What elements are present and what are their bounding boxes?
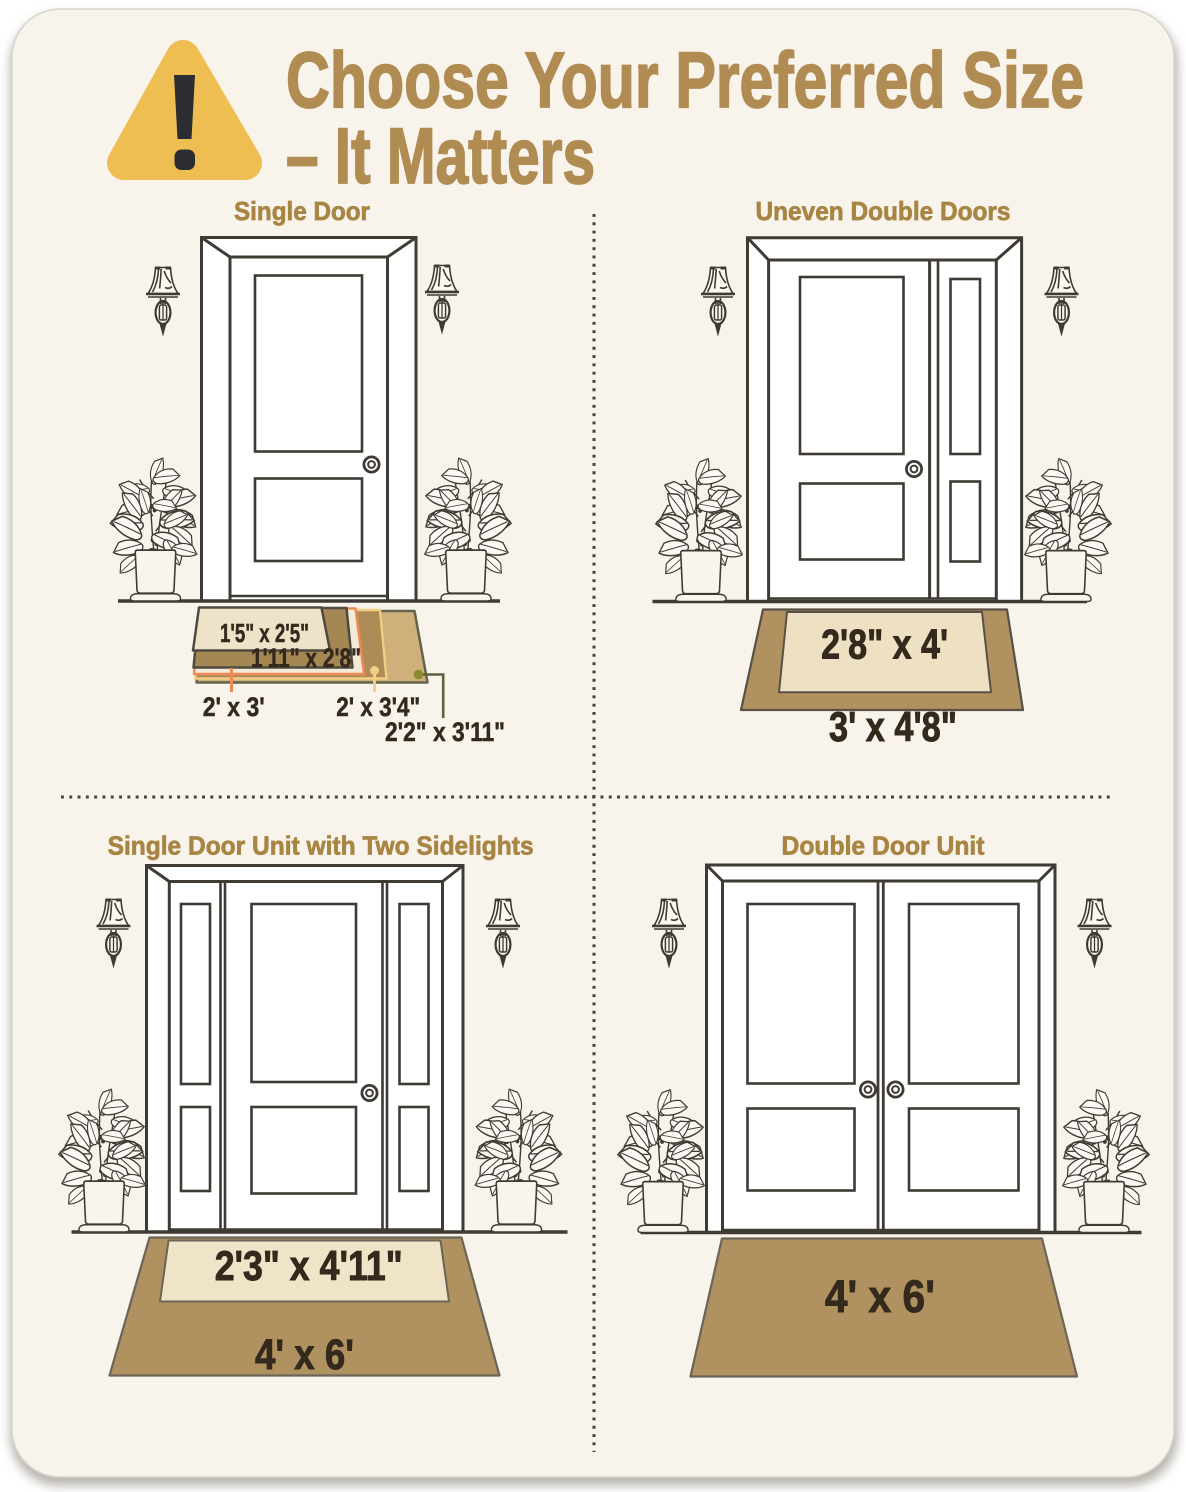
svg-text:2' x 3': 2' x 3': [203, 692, 265, 722]
svg-text:Single Door Unit with Two Side: Single Door Unit with Two Sidelights: [108, 831, 534, 861]
svg-text:– It Matters: – It Matters: [286, 111, 595, 200]
svg-text:4' x 6': 4' x 6': [825, 1271, 935, 1322]
svg-text:2'8" x 4': 2'8" x 4': [821, 620, 948, 667]
svg-text:3' x 4'8": 3' x 4'8": [829, 703, 957, 750]
svg-text:Uneven Double Doors: Uneven Double Doors: [756, 196, 1011, 226]
svg-text:2'3" x 4'11": 2'3" x 4'11": [215, 1242, 403, 1289]
svg-text:2'2" x 3'11": 2'2" x 3'11": [385, 717, 505, 747]
svg-text:Single Door: Single Door: [234, 196, 370, 226]
svg-text:1'11" x 2'8": 1'11" x 2'8": [251, 643, 361, 673]
svg-text:Double Door Unit: Double Door Unit: [782, 831, 985, 861]
svg-text:4' x 6': 4' x 6': [255, 1331, 354, 1379]
